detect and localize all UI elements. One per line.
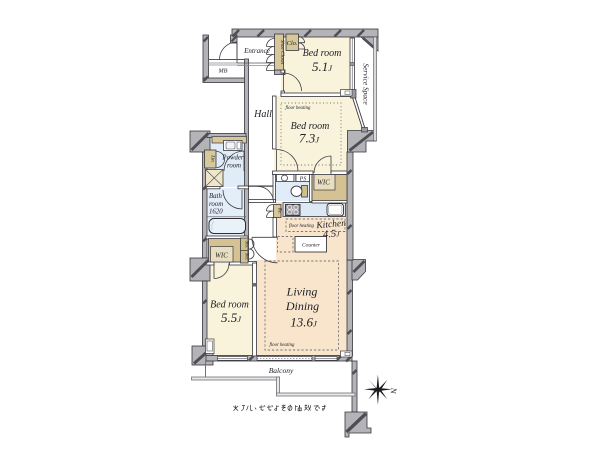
svg-text:Bath: Bath — [209, 193, 222, 200]
svg-text:MB: MB — [218, 68, 228, 75]
svg-text:room: room — [209, 201, 223, 208]
svg-text:Service Space: Service Space — [362, 63, 371, 105]
svg-text:Sto.: Sto. — [244, 253, 249, 260]
svg-text:Powder: Powder — [221, 155, 243, 162]
svg-text:1620: 1620 — [209, 209, 223, 216]
svg-text:Living: Living — [286, 285, 318, 299]
svg-text:WIC: WIC — [317, 179, 330, 187]
svg-text:floor heating: floor heating — [270, 343, 296, 348]
svg-text:PS: PS — [299, 177, 307, 183]
svg-text:Re.: Re. — [277, 207, 282, 214]
svg-text:Sto.: Sto. — [244, 241, 249, 248]
svg-text:Shoe Closet: Shoe Closet — [279, 40, 285, 65]
svg-text:Bed room: Bed room — [210, 300, 249, 311]
svg-text:Dining: Dining — [285, 299, 319, 313]
svg-text:WIC: WIC — [215, 252, 228, 260]
svg-text:Lin.: Lin. — [210, 154, 215, 163]
svg-text:Entrance: Entrance — [243, 47, 270, 55]
svg-text:Bed room: Bed room — [303, 48, 342, 59]
svg-text:Balcony: Balcony — [269, 366, 294, 375]
svg-text:Hall: Hall — [253, 109, 272, 120]
svg-text:floor heating: floor heating — [286, 106, 312, 111]
svg-text:room: room — [227, 163, 241, 170]
svg-text:Clo.: Clo. — [286, 40, 297, 47]
svg-text:Counter: Counter — [302, 243, 321, 249]
svg-text:floor heating: floor heating — [289, 224, 315, 229]
